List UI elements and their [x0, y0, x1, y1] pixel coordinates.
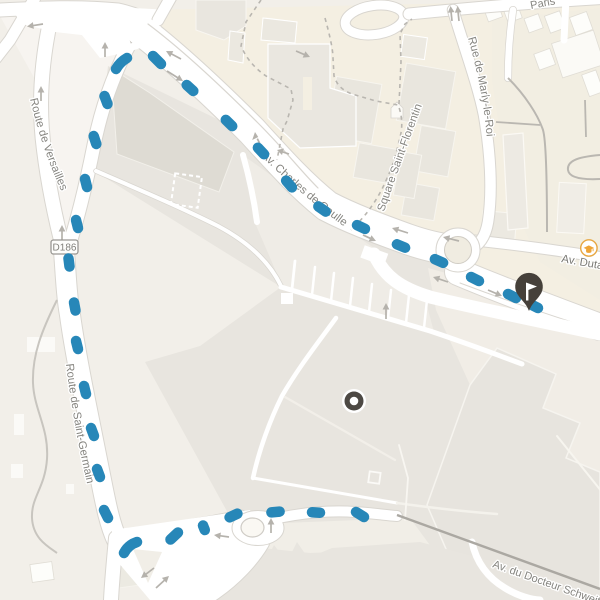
svg-text:D186: D186: [53, 243, 77, 254]
